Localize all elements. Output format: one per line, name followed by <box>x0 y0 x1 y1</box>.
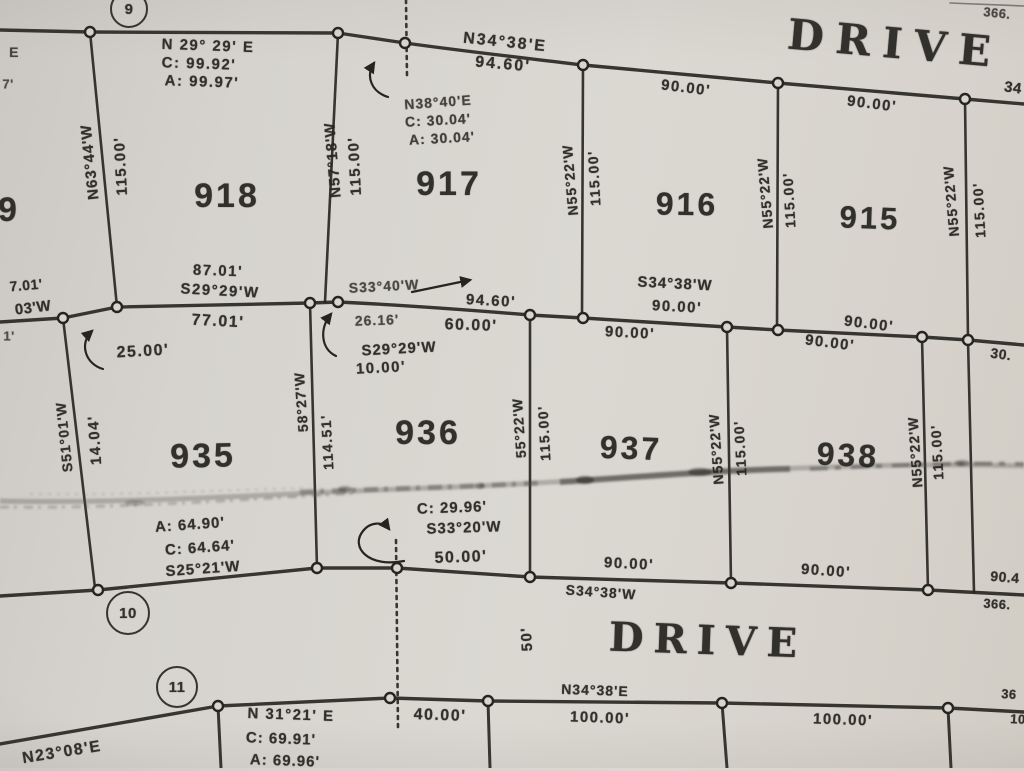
dist-2616: 26.16' <box>355 312 400 328</box>
bearing-n2308e: N23°08'E <box>21 739 103 767</box>
lot916-east-bearing: N55°22'W <box>755 157 775 229</box>
lot919-number-frag: 9 <box>0 193 20 227</box>
lot918-curve-bearing: N 29° 29' E <box>161 37 254 55</box>
frag-34-top-right: 34 <box>1003 79 1023 96</box>
lot916-number: 916 <box>656 187 719 220</box>
frag-7-left: 7' <box>2 78 13 91</box>
curve-bearing-n3840e: N38°40'E <box>404 93 472 112</box>
lot936-west-bearing: 58°27'W <box>292 371 310 432</box>
plat-map-scan: 9N34°38'E94.60'DRIVE366.34N 29° 29' EC: … <box>0 0 1024 768</box>
dist-9460-mid: 94.60' <box>466 292 517 310</box>
lot918-south-bearing: S29°29'W <box>180 281 260 300</box>
dist-4000-bottom: 40.00' <box>413 707 466 725</box>
curve-chord-2996: C: 29.96' <box>417 499 488 516</box>
lot918-curve-arc: A: 99.97' <box>164 73 239 91</box>
lot917-east-bearing: N55°22'W <box>560 144 580 216</box>
lot916-east-dist: 115.00' <box>781 172 798 229</box>
dist-2500: 25.00' <box>116 343 170 362</box>
lot-curve-n3121e: N 31°21' E <box>247 706 335 724</box>
frag-1-left: 1' <box>3 330 14 343</box>
frag-366-lower: 366. <box>983 597 1011 612</box>
lot937-number: 937 <box>599 431 662 465</box>
lot937-south-dist: 90.00' <box>604 555 655 573</box>
bearing-n3438e-bottom: N34°38'E <box>561 682 629 698</box>
lot936-north-dist: 60.00' <box>444 317 497 335</box>
frag-30-right: 30. <box>990 346 1013 363</box>
lot938-east-bearing: N55°22'W <box>906 416 925 488</box>
dist-1000: 10.00' <box>356 359 407 377</box>
lot936-number: 936 <box>395 416 461 450</box>
dist-10000-a: 100.00' <box>570 709 630 726</box>
lot938-north-dist: 90.00' <box>804 333 856 354</box>
bearing-n3438e-top: N34°38'E <box>462 31 547 56</box>
frag-e-left: E <box>9 45 19 59</box>
lot937-west-bearing: 55°22'W <box>510 397 528 458</box>
curve-point-9: 9 <box>110 0 148 28</box>
dist-9460-top: 94.60' <box>474 55 531 76</box>
lot915-east-dist: 115.00' <box>971 182 988 239</box>
frag-03w-left: 03'W <box>14 298 52 317</box>
lot918-number: 918 <box>194 179 260 213</box>
lot917-number: 917 <box>416 167 482 201</box>
frag-904-right: 90.4 <box>990 569 1020 585</box>
lot936-south-dist: 50.00' <box>434 549 487 567</box>
lot936-west-dist: 114.51' <box>319 414 336 471</box>
lot938-east-dist: 115.00' <box>929 424 946 481</box>
bearing-s3438w-lower: S34°38'W <box>565 583 636 602</box>
lot937-north-dist: 90.00' <box>605 324 656 342</box>
lot938-south-dist: 90.00' <box>800 562 851 580</box>
lot916-north-dist: 90.00' <box>660 78 712 99</box>
lot938-number: 938 <box>816 437 880 472</box>
lot935-north-dist: 77.01' <box>191 313 245 332</box>
lot935-number: 935 <box>170 438 236 473</box>
lot915-north-dist: 90.00' <box>846 94 898 115</box>
lot917-west-bearing: N57°18'W <box>322 122 344 199</box>
frag-366-top: 366. <box>983 5 1012 21</box>
curve-point-11: 11 <box>156 666 198 708</box>
frag-701-left: 7.01' <box>9 277 43 294</box>
street-name-top: DRIVE <box>786 14 1004 75</box>
curve-chord-3004: C: 30.04' <box>405 111 472 128</box>
lot937-west-dist: 115.00' <box>536 405 553 462</box>
lot915-east-bearing: N55°22'W <box>941 165 961 237</box>
lot917-east-dist: 115.00' <box>586 150 603 207</box>
lot915-south-dist: 90.00' <box>843 314 895 335</box>
lot916-south-bearing: S34°38'W <box>637 275 713 294</box>
lot935-curve-chord: C: 64.64' <box>165 538 236 558</box>
lot937-east-dist: 115.00' <box>732 420 749 477</box>
lot935-west-bearing: S51°01'W <box>53 401 74 473</box>
lot-curve-a6996: A: 69.96' <box>250 752 321 769</box>
label-layer: 9N34°38'E94.60'DRIVE366.34N 29° 29' EC: … <box>0 0 1024 768</box>
bearing-s2929w-936: S29°29'W <box>361 340 437 359</box>
lot935-curve-bearing: S25°21'W <box>165 559 241 579</box>
street-name-bottom: DRIVE <box>608 618 807 665</box>
curve-bearing-s3320w: S33°20'W <box>426 519 502 537</box>
lot918-west-dist: 115.00' <box>112 136 130 196</box>
lot935-west-dist: 14.04' <box>86 414 104 465</box>
street-width-50: 50' <box>519 626 535 652</box>
frag-36-bottom-right: 36 <box>1001 687 1017 701</box>
lot917-west-dist: 115.00' <box>346 136 364 196</box>
curve-point-10: 10 <box>106 591 150 635</box>
lot915-number: 915 <box>839 201 901 234</box>
dist-10000-b: 100.00' <box>813 711 873 728</box>
lot937-east-bearing: N55°22'W <box>707 413 726 485</box>
bearing-s3340w: S33°40'W <box>348 277 419 295</box>
lot916-south-dist: 90.00' <box>652 298 703 316</box>
lot935-curve-arc: A: 64.90' <box>155 515 226 535</box>
lot918-west-bearing: N63°44'W <box>79 123 102 200</box>
lot918-south-dist: 87.01' <box>193 263 244 280</box>
lot-curve-c6991: C: 69.91' <box>246 730 317 747</box>
curve-arc-3004: A: 30.04' <box>409 129 476 146</box>
lot918-curve-chord: C: 99.92' <box>161 55 236 73</box>
frag-10-bottom-right: 10 <box>1010 712 1024 726</box>
